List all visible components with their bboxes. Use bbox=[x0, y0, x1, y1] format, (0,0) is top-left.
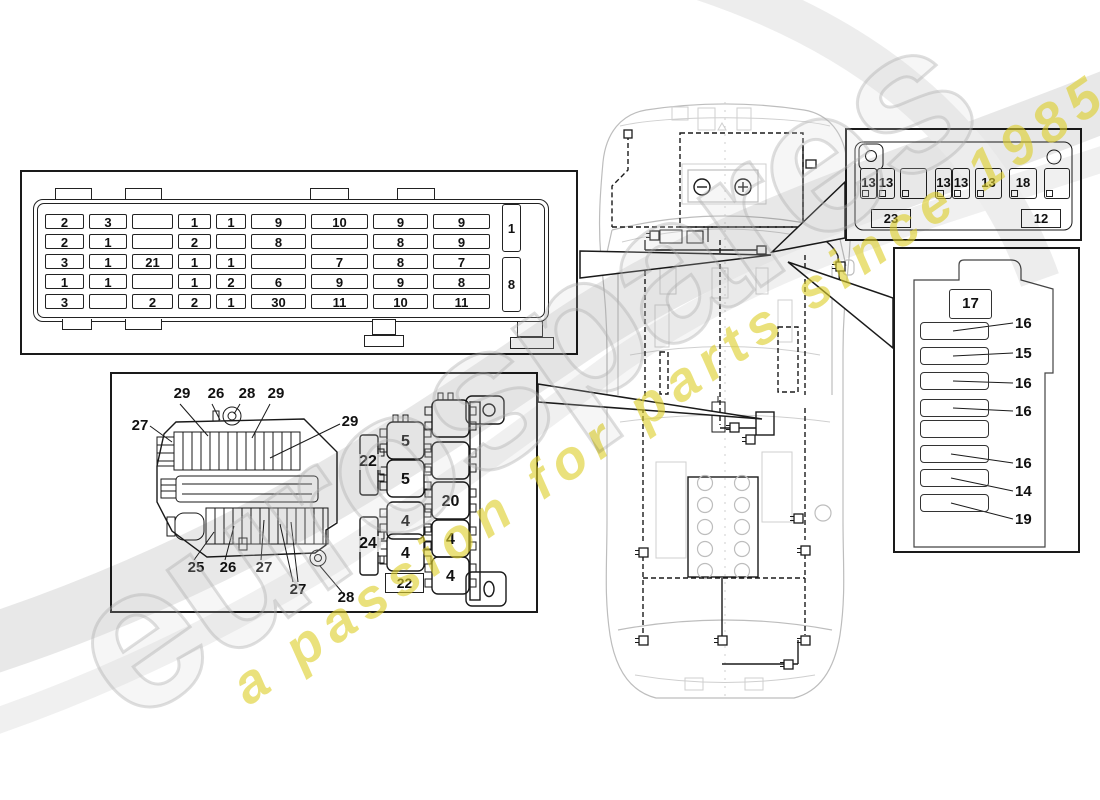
fuse-cell: 7 bbox=[433, 254, 490, 269]
fuse-cell: 2 bbox=[178, 234, 211, 249]
mount-tab bbox=[55, 188, 92, 199]
parts-diagram-page: 2311910992128893121117871112699832213011… bbox=[0, 0, 1100, 800]
callout-27: 27 bbox=[284, 582, 312, 598]
fuel-cap bbox=[815, 505, 831, 521]
relay-slot: 13 bbox=[935, 168, 952, 199]
engine-v10 bbox=[688, 476, 758, 579]
cylinder bbox=[735, 542, 750, 557]
fuse-cell bbox=[132, 214, 173, 229]
relay-slot: 18 bbox=[1009, 168, 1037, 199]
relay-slot: 13 bbox=[877, 168, 895, 199]
cylinder bbox=[698, 498, 713, 513]
relay: 20 bbox=[425, 482, 476, 519]
fuse-cell: 8 bbox=[433, 274, 490, 289]
connector-icon bbox=[797, 636, 810, 645]
fuse-cell: 1 bbox=[89, 254, 127, 269]
fuse-cell: 1 bbox=[178, 254, 211, 269]
fuse-cell-side: 1 bbox=[502, 204, 521, 252]
connector-icon bbox=[797, 546, 810, 555]
cylinder bbox=[735, 498, 750, 513]
trunk-slot bbox=[920, 372, 989, 390]
trunk-slot bbox=[920, 399, 989, 417]
relay-carrier-panel: 55442044 27 2 bbox=[110, 372, 538, 613]
label-16: 16 bbox=[1015, 316, 1047, 332]
trunk-slot bbox=[920, 322, 989, 340]
mount-foot bbox=[510, 337, 554, 349]
wiring-harness bbox=[612, 130, 845, 669]
module-label-24: 24 bbox=[355, 536, 381, 552]
car-top-view bbox=[560, 90, 890, 715]
bottom-label-23: 23 bbox=[871, 209, 911, 228]
car-drawing bbox=[560, 90, 890, 715]
fuse-cell: 9 bbox=[311, 274, 368, 289]
fuse-cell: 3 bbox=[89, 214, 127, 229]
component-carrier bbox=[157, 407, 337, 566]
fuse-cell bbox=[311, 234, 368, 249]
connector-icon bbox=[635, 548, 648, 557]
svg-text:4: 4 bbox=[446, 531, 455, 548]
trunk-slot bbox=[920, 469, 989, 487]
relay: 5 bbox=[380, 422, 431, 459]
trunk-slot bbox=[920, 420, 989, 438]
fuse-cell-side: 8 bbox=[502, 257, 521, 312]
fuse-cell bbox=[132, 274, 173, 289]
fuse-cell: 3 bbox=[45, 254, 84, 269]
fuse-cell bbox=[251, 254, 306, 269]
label-14: 14 bbox=[1015, 484, 1047, 500]
fuse-cell: 11 bbox=[311, 294, 368, 309]
svg-text:4: 4 bbox=[401, 545, 410, 562]
car-outline bbox=[600, 102, 851, 700]
connector-icon bbox=[742, 435, 755, 444]
screw-hole-icon bbox=[866, 151, 877, 162]
cylinder bbox=[698, 476, 713, 491]
module-label-22: 22 bbox=[355, 454, 381, 470]
svg-text:4: 4 bbox=[446, 568, 455, 585]
mount-tab bbox=[125, 319, 162, 330]
callout-26: 26 bbox=[214, 560, 242, 576]
relay-carrier-drawing: 55442044 bbox=[112, 374, 536, 611]
callout-28: 28 bbox=[233, 386, 261, 402]
relay bbox=[425, 442, 476, 479]
fuse-cell bbox=[132, 234, 173, 249]
fuse-cell: 6 bbox=[251, 274, 306, 289]
cylinder bbox=[735, 476, 750, 491]
fuse-cell: 9 bbox=[433, 234, 490, 249]
label-15: 15 bbox=[1015, 346, 1047, 362]
mount-tab bbox=[397, 188, 435, 199]
mount-tab bbox=[62, 319, 92, 330]
callout-26: 26 bbox=[202, 386, 230, 402]
fuse-cell: 8 bbox=[251, 234, 306, 249]
cylinder bbox=[698, 542, 713, 557]
svg-text:4: 4 bbox=[401, 513, 410, 530]
bolt-icon bbox=[223, 407, 241, 425]
trunk-slot bbox=[920, 347, 989, 365]
fuse-cell: 21 bbox=[132, 254, 173, 269]
fuse-cell: 2 bbox=[45, 234, 84, 249]
fuse-cell: 8 bbox=[373, 254, 428, 269]
fuse-cell: 2 bbox=[216, 274, 246, 289]
connector-icon bbox=[714, 636, 727, 645]
fuse-cell: 2 bbox=[45, 214, 84, 229]
relay-slot bbox=[1044, 168, 1070, 199]
relay bbox=[425, 400, 476, 437]
fuse-cell bbox=[89, 294, 127, 309]
fuse-cell: 1 bbox=[216, 214, 246, 229]
label-16: 16 bbox=[1015, 456, 1047, 472]
battery bbox=[688, 170, 758, 202]
screw-hole-icon bbox=[1047, 150, 1061, 164]
trunk-slot bbox=[920, 445, 989, 463]
trunk-fuse-panel: 17 16 15 16 16 16 14 19 bbox=[893, 247, 1080, 553]
mount-tab bbox=[125, 188, 162, 199]
connector-icon bbox=[646, 231, 659, 240]
mount-bracket bbox=[470, 402, 480, 600]
main-fuse-grid: 2311910992128893121117871112699832213011… bbox=[45, 214, 490, 309]
mount-foot bbox=[517, 321, 543, 337]
fuse-cell: 9 bbox=[433, 214, 490, 229]
connector-icon bbox=[832, 262, 845, 271]
callout-28: 28 bbox=[332, 590, 360, 606]
fuse-cell: 9 bbox=[251, 214, 306, 229]
bolt-icon bbox=[310, 550, 326, 566]
trunk-slot bbox=[920, 494, 989, 512]
bottom-label-22: 22 bbox=[385, 573, 424, 593]
relay-slot: 13 bbox=[975, 168, 1002, 199]
fuse-cell: 2 bbox=[178, 294, 211, 309]
callout-29: 29 bbox=[262, 386, 290, 402]
fuse-cell: 2 bbox=[132, 294, 173, 309]
fuse-cell bbox=[216, 234, 246, 249]
mount-tab bbox=[310, 188, 349, 199]
relay-slot: 13 bbox=[860, 168, 877, 199]
svg-text:5: 5 bbox=[401, 433, 410, 450]
callout-27: 27 bbox=[250, 560, 278, 576]
fuse-cell: 1 bbox=[178, 214, 211, 229]
mount-foot bbox=[364, 335, 404, 347]
fuse-cell: 1 bbox=[216, 294, 246, 309]
label-19: 19 bbox=[1015, 512, 1047, 528]
fuse-cell: 30 bbox=[251, 294, 306, 309]
fuse-cell: 8 bbox=[373, 234, 428, 249]
relay-slot: 13 bbox=[952, 168, 970, 199]
cylinder bbox=[735, 520, 750, 535]
fuse-cell: 1 bbox=[216, 254, 246, 269]
fuse-17-box: 17 bbox=[949, 289, 992, 319]
callout-29: 29 bbox=[336, 414, 364, 430]
relay: 4 bbox=[425, 557, 476, 594]
svg-text:5: 5 bbox=[401, 471, 410, 488]
fuse-cell: 1 bbox=[178, 274, 211, 289]
fuse-cell: 9 bbox=[373, 274, 428, 289]
label-16: 16 bbox=[1015, 404, 1047, 420]
callout-27: 27 bbox=[126, 418, 154, 434]
fuse-cell: 7 bbox=[311, 254, 368, 269]
bottom-label-12: 12 bbox=[1021, 209, 1061, 228]
svg-text:20: 20 bbox=[442, 493, 460, 510]
fuse-cell: 3 bbox=[45, 294, 84, 309]
mount-foot bbox=[372, 319, 396, 335]
small-relay-box-panel: 131313131318 23 12 bbox=[845, 128, 1082, 241]
connector-icon bbox=[635, 636, 648, 645]
relay: 5 bbox=[380, 460, 431, 497]
label-16: 16 bbox=[1015, 376, 1047, 392]
fuse-cell: 1 bbox=[89, 274, 127, 289]
relay-block: 55442044 bbox=[360, 393, 506, 606]
cylinder bbox=[698, 520, 713, 535]
fuse-cell: 11 bbox=[433, 294, 490, 309]
fuse-cell: 10 bbox=[311, 214, 368, 229]
fuse-cell: 9 bbox=[373, 214, 428, 229]
fuse-cell: 1 bbox=[89, 234, 127, 249]
main-fusebox-panel: 2311910992128893121117871112699832213011… bbox=[20, 170, 578, 355]
callout-29: 29 bbox=[168, 386, 196, 402]
callout-25: 25 bbox=[182, 560, 210, 576]
cylinder bbox=[735, 564, 750, 579]
relay: 4 bbox=[425, 520, 476, 557]
relay-slot bbox=[900, 168, 927, 199]
fuse-cell: 10 bbox=[373, 294, 428, 309]
fuse-cell: 1 bbox=[45, 274, 84, 289]
cylinder bbox=[698, 564, 713, 579]
